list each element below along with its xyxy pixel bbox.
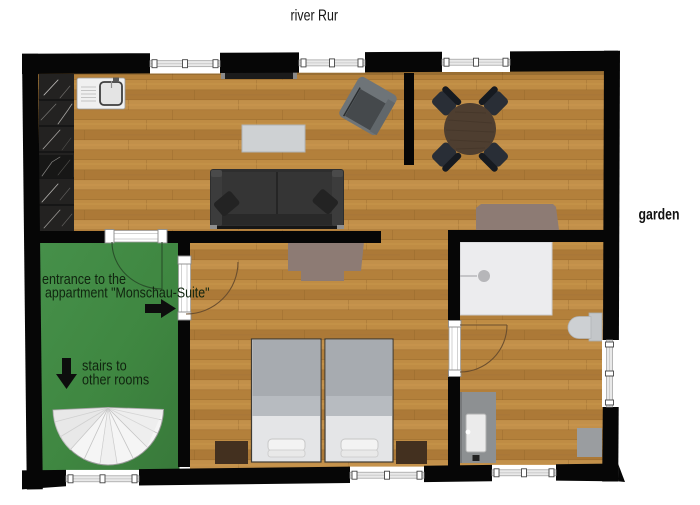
svg-text:other rooms: other rooms bbox=[82, 372, 149, 388]
svg-text:garden: garden bbox=[639, 207, 680, 224]
svg-text:appartment "Monschau-Suite": appartment "Monschau-Suite" bbox=[45, 285, 210, 301]
svg-text:river Rur: river Rur bbox=[291, 8, 339, 25]
